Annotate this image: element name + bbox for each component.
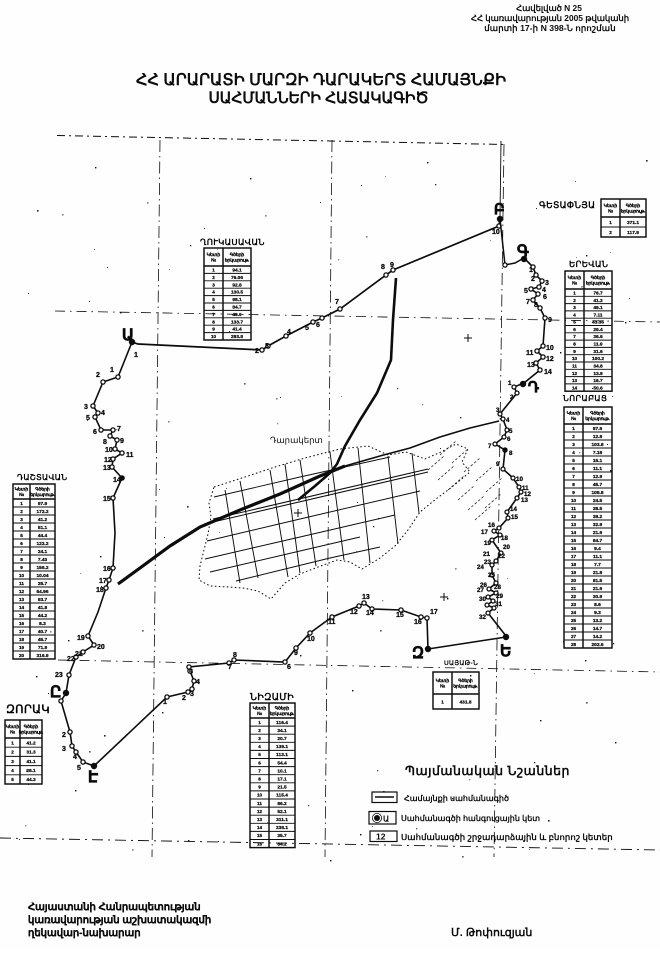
svg-text:17: 17 [430, 609, 438, 616]
svg-text:44.3: 44.3 [26, 777, 36, 783]
svg-text:24: 24 [571, 610, 577, 615]
svg-text:Է: Է [88, 769, 99, 786]
svg-text:103.8: 103.8 [591, 442, 603, 448]
svg-text:9.3: 9.3 [594, 610, 601, 616]
svg-text:1: 1 [572, 426, 575, 431]
svg-text:Պայմանական Նշաններ: Պայմանական Նշաններ [405, 764, 570, 778]
svg-text:238.1: 238.1 [276, 825, 288, 831]
svg-text:2: 2 [96, 372, 100, 379]
svg-text:Դ: Դ [528, 380, 540, 396]
svg-text:ԵՐԵՎԱՆ: ԵՐԵՎԱՆ [569, 259, 609, 269]
svg-text:№: № [571, 416, 576, 421]
svg-text:ՂՈՒԿԱՍԱՎԱՆ: ՂՈՒԿԱՍԱՎԱՆ [200, 237, 265, 247]
svg-text:4: 4 [73, 754, 77, 761]
svg-text:12: 12 [572, 371, 578, 376]
svg-text:41.2: 41.2 [593, 298, 603, 304]
svg-text:ՆՈՐԱԲԱՑ: ՆՈՐԱԲԱՑ [562, 394, 607, 403]
svg-text:13: 13 [572, 378, 578, 383]
svg-text:41.2: 41.2 [38, 517, 48, 523]
svg-text:115.4: 115.4 [276, 793, 288, 799]
svg-text:116.4: 116.4 [276, 720, 288, 726]
svg-text:Մ. Թոփուզյան: Մ. Թոփուզյան [451, 927, 532, 939]
svg-text:13: 13 [257, 817, 263, 822]
svg-text:13.2: 13.2 [593, 618, 603, 624]
svg-text:15: 15 [396, 612, 404, 619]
svg-text:9: 9 [573, 349, 576, 354]
svg-text:34.8: 34.8 [593, 363, 603, 369]
svg-text:10: 10 [307, 636, 315, 643]
svg-text:32.9: 32.9 [593, 522, 603, 528]
svg-text:2: 2 [609, 230, 612, 235]
svg-text:50.6: 50.6 [593, 385, 603, 391]
svg-text:28: 28 [494, 584, 501, 591]
svg-text:14.2: 14.2 [593, 634, 603, 640]
svg-text:Գծերի: Գծերի [458, 678, 473, 683]
svg-text:9: 9 [294, 650, 298, 657]
svg-text:45.7: 45.7 [593, 482, 603, 488]
svg-text:6: 6 [212, 305, 215, 310]
svg-text:7.11: 7.11 [593, 312, 602, 318]
svg-text:4: 4 [101, 410, 105, 417]
svg-text:№: № [440, 684, 445, 689]
svg-text:երկարութ.: երկարութ. [585, 416, 610, 421]
svg-text:№: № [608, 209, 613, 214]
svg-text:Գծերի: Գծերի [35, 487, 50, 492]
svg-text:7: 7 [228, 664, 232, 671]
svg-text:21.5: 21.5 [277, 785, 287, 791]
svg-text:81.5: 81.5 [593, 578, 603, 584]
svg-text:5: 5 [189, 669, 193, 676]
svg-text:10: 10 [492, 229, 500, 236]
svg-text:7.18: 7.18 [593, 450, 603, 456]
svg-text:18: 18 [19, 637, 25, 642]
svg-text:3: 3 [20, 517, 23, 522]
svg-text:4: 4 [11, 768, 14, 773]
svg-text:4: 4 [212, 290, 215, 295]
svg-text:8: 8 [103, 439, 107, 446]
svg-text:20: 20 [97, 644, 105, 651]
svg-text:2: 2 [182, 695, 186, 702]
svg-text:23: 23 [55, 672, 63, 679]
svg-text:17: 17 [99, 578, 107, 585]
svg-text:24.5: 24.5 [593, 498, 603, 504]
svg-text:13: 13 [19, 597, 25, 602]
svg-text:28.1: 28.1 [26, 768, 36, 774]
svg-text:Գծերի: Գծերի [590, 411, 605, 416]
svg-text:2: 2 [62, 732, 66, 739]
svg-text:ՀՀ կառավարության 2005 թվականի: ՀՀ կառավարության 2005 թվականի [471, 13, 629, 23]
svg-text:2: 2 [20, 509, 23, 514]
svg-text:5: 5 [524, 288, 528, 295]
svg-text:202.6: 202.6 [591, 642, 603, 648]
svg-text:41.2: 41.2 [26, 740, 36, 746]
svg-text:1: 1 [529, 267, 533, 274]
svg-text:92.8: 92.8 [232, 282, 242, 288]
svg-text:1: 1 [441, 699, 444, 704]
svg-text:2: 2 [572, 434, 575, 439]
svg-text:Ա: Ա [122, 327, 134, 344]
svg-text:21.8: 21.8 [593, 570, 603, 576]
svg-text:41.4: 41.4 [232, 327, 242, 333]
svg-text:21.6: 21.6 [593, 530, 603, 536]
svg-text:12: 12 [257, 809, 263, 814]
svg-text:133.7: 133.7 [231, 319, 243, 325]
svg-text:6: 6 [93, 429, 97, 436]
svg-text:13: 13 [103, 465, 111, 472]
svg-text:7: 7 [573, 334, 576, 339]
svg-text:1: 1 [163, 699, 167, 706]
svg-text:30.9: 30.9 [593, 594, 603, 600]
svg-text:2: 2 [531, 276, 535, 283]
svg-text:6: 6 [543, 294, 547, 301]
svg-text:1: 1 [20, 501, 23, 506]
svg-text:2: 2 [258, 728, 261, 733]
svg-text:14: 14 [510, 506, 517, 513]
svg-text:49.9: 49.9 [232, 312, 242, 318]
svg-text:12: 12 [376, 832, 386, 842]
svg-text:8: 8 [212, 319, 215, 324]
svg-text:86.2: 86.2 [277, 801, 287, 807]
svg-text:Հավելված N 25: Հավելված N 25 [516, 3, 582, 13]
svg-text:15: 15 [571, 538, 577, 543]
svg-text:Սահմանագծի հանգուցային կետ: Սահմանագծի հանգուցային կետ [401, 813, 540, 824]
svg-text:27: 27 [571, 634, 577, 639]
svg-text:ԳԵՏԱՓՆՅԱ: ԳԵՏԱՓՆՅԱ [539, 200, 595, 210]
svg-text:76.06: 76.06 [231, 275, 243, 281]
svg-text:11: 11 [257, 801, 262, 806]
svg-text:1: 1 [212, 268, 215, 273]
svg-text:Գծերի: Գծերի [24, 724, 39, 729]
svg-text:3: 3 [84, 404, 88, 411]
svg-text:41.8: 41.8 [38, 605, 48, 611]
svg-text:9: 9 [572, 490, 575, 495]
svg-text:15: 15 [19, 613, 25, 618]
svg-text:13: 13 [362, 594, 370, 601]
svg-text:41.1: 41.1 [26, 759, 36, 765]
svg-text:14: 14 [572, 385, 578, 390]
svg-text:172.2: 172.2 [36, 509, 48, 515]
svg-text:7: 7 [335, 299, 339, 306]
svg-text:13: 13 [571, 522, 577, 527]
svg-text:12: 12 [104, 457, 112, 464]
svg-text:14: 14 [113, 477, 121, 484]
svg-text:31: 31 [495, 601, 502, 608]
svg-text:16: 16 [571, 546, 577, 551]
svg-text:12: 12 [19, 589, 25, 594]
svg-text:27: 27 [477, 587, 484, 594]
svg-text:4: 4 [542, 287, 546, 294]
svg-text:10: 10 [546, 345, 554, 352]
svg-text:4: 4 [287, 329, 291, 336]
svg-text:Բ: Բ [494, 202, 505, 218]
svg-text:5: 5 [20, 533, 23, 538]
svg-text:21: 21 [571, 586, 577, 591]
svg-text:21.6: 21.6 [593, 586, 603, 592]
svg-text:1: 1 [258, 720, 261, 725]
svg-text:44.4: 44.4 [38, 533, 48, 539]
svg-text:24.1: 24.1 [38, 549, 48, 555]
svg-text:14.7: 14.7 [593, 626, 603, 632]
svg-text:3: 3 [62, 746, 66, 753]
svg-text:293.8: 293.8 [231, 334, 243, 340]
svg-text:11.1: 11.1 [593, 554, 602, 560]
svg-text:19: 19 [571, 570, 577, 575]
svg-text:71.9: 71.9 [38, 645, 48, 651]
svg-text:2: 2 [11, 750, 14, 755]
svg-text:3: 3 [212, 282, 215, 287]
svg-text:Ը: Ը [50, 684, 61, 701]
svg-text:15: 15 [103, 496, 111, 503]
svg-text:16: 16 [257, 841, 263, 846]
svg-text:կառավարության աշխատակազմի: կառավարության աշխատակազմի [28, 915, 211, 926]
svg-text:Զ: Զ [412, 645, 424, 662]
svg-text:մարտի 17-ի N 398-Ն որոշման: մարտի 17-ի N 398-Ն որոշման [484, 23, 616, 34]
svg-text:19: 19 [77, 635, 85, 642]
svg-text:87.6: 87.6 [593, 426, 603, 432]
svg-text:3: 3 [545, 280, 549, 287]
svg-text:ղեկավար-նախարար: ղեկավար-նախարար [28, 928, 141, 939]
svg-text:316.9: 316.9 [36, 653, 48, 659]
svg-text:№: № [19, 492, 24, 497]
svg-text:5: 5 [509, 428, 513, 435]
svg-text:9: 9 [258, 785, 261, 790]
svg-text:19: 19 [19, 645, 25, 650]
svg-text:12: 12 [571, 514, 577, 519]
svg-text:4: 4 [573, 312, 576, 317]
svg-text:122.2: 122.2 [36, 541, 48, 547]
svg-text:Հայաստանի Հանրապետության: Հայաստանի Հանրապետության [28, 902, 201, 913]
svg-text:9: 9 [548, 317, 552, 324]
svg-text:13.9: 13.9 [593, 371, 603, 377]
svg-text:6: 6 [20, 541, 23, 546]
svg-text:7.43: 7.43 [38, 557, 48, 563]
svg-text:10: 10 [572, 356, 578, 361]
svg-text:Համայնքի սահմանագիծ: Համայնքի սահմանագիծ [404, 793, 509, 803]
svg-text:4: 4 [572, 450, 575, 455]
svg-text:3: 3 [496, 407, 500, 414]
svg-text:19: 19 [484, 540, 491, 547]
svg-text:7: 7 [212, 312, 215, 317]
svg-text:երկարութ.: երկարութ. [270, 711, 295, 716]
svg-text:11: 11 [328, 619, 336, 626]
svg-text:52.1: 52.1 [277, 809, 287, 815]
svg-text:28: 28 [571, 642, 577, 647]
svg-text:8.3: 8.3 [39, 621, 46, 627]
svg-text:43.35: 43.35 [592, 320, 604, 326]
svg-text:36.6: 36.6 [593, 334, 603, 340]
svg-text:40.7: 40.7 [38, 629, 48, 635]
svg-text:ՍԱՀՄԱՆՆԵՐԻ ՀԱՏԱԿԱԳԻԾ: ՍԱՀՄԱՆՆԵՐԻ ՀԱՏԱԿԱԳԻԾ [208, 90, 428, 107]
svg-text:10: 10 [516, 476, 523, 483]
svg-text:16: 16 [103, 566, 111, 573]
svg-text:20: 20 [503, 544, 510, 551]
svg-text:84.7: 84.7 [232, 305, 242, 311]
svg-text:18: 18 [501, 535, 508, 542]
svg-text:11.1: 11.1 [593, 466, 602, 472]
svg-text:25.7: 25.7 [38, 581, 48, 587]
svg-text:7: 7 [526, 299, 530, 306]
svg-text:Ա: Ա [383, 815, 389, 824]
svg-text:49.1: 49.1 [593, 305, 603, 311]
svg-text:17.1: 17.1 [277, 777, 287, 783]
svg-text:Գծերի: Գծերի [275, 706, 290, 711]
svg-text:38.5: 38.5 [593, 506, 603, 512]
svg-text:5: 5 [258, 752, 261, 757]
svg-text:ՀՀ ԱՐԱՐԱՏԻ ՄԱՐԶԻ ԴԱՐԱԿԵՐՏ ՀԱՄԱ: ՀՀ ԱՐԱՐԱՏԻ ՄԱՐԶԻ ԴԱՐԱԿԵՐՏ ՀԱՄԱՅՆՔԻ [136, 72, 506, 89]
svg-text:8: 8 [258, 777, 261, 782]
svg-text:10: 10 [105, 447, 113, 454]
svg-text:8: 8 [381, 264, 385, 271]
svg-text:9: 9 [390, 262, 394, 269]
svg-text:երկարութ.: երկարութ. [30, 492, 55, 497]
svg-text:23: 23 [571, 602, 577, 607]
svg-text:54.96: 54.96 [36, 589, 48, 595]
svg-text:8: 8 [509, 450, 513, 457]
svg-text:15: 15 [257, 833, 263, 838]
svg-text:6: 6 [316, 322, 320, 329]
svg-text:21: 21 [483, 551, 490, 558]
svg-text:22: 22 [67, 656, 75, 663]
svg-text:84.7: 84.7 [593, 538, 603, 544]
svg-text:8: 8 [233, 652, 237, 659]
svg-text:31.6: 31.6 [593, 349, 603, 355]
svg-text:7: 7 [20, 549, 23, 554]
svg-text:35.7: 35.7 [277, 833, 287, 839]
svg-text:23: 23 [484, 559, 491, 566]
svg-text:11: 11 [526, 350, 534, 357]
svg-text:30: 30 [479, 596, 486, 603]
svg-text:98.1: 98.1 [232, 297, 242, 303]
svg-text:97.9: 97.9 [38, 501, 48, 507]
svg-text:93.7: 93.7 [38, 597, 48, 603]
svg-text:3: 3 [572, 442, 575, 447]
svg-text:7.7: 7.7 [594, 562, 601, 568]
svg-text:51.1: 51.1 [38, 525, 48, 531]
svg-text:109.8: 109.8 [591, 490, 603, 496]
svg-text:2: 2 [573, 298, 576, 303]
svg-text:5: 5 [573, 320, 576, 325]
svg-text:10: 10 [19, 573, 25, 578]
svg-text:երկարութ.: երկարութ. [19, 730, 44, 735]
svg-text:8: 8 [572, 482, 575, 487]
svg-text:7: 7 [488, 443, 492, 450]
svg-text:10: 10 [211, 334, 217, 339]
svg-text:22: 22 [498, 553, 505, 560]
svg-text:13: 13 [527, 362, 535, 369]
svg-text:14: 14 [19, 605, 25, 610]
svg-text:5: 5 [212, 297, 215, 302]
svg-text:32: 32 [479, 614, 486, 621]
svg-text:11: 11 [126, 452, 134, 459]
svg-text:21: 21 [75, 651, 83, 658]
svg-text:ԶՈՐԱԿ: ԶՈՐԱԿ [6, 703, 50, 716]
svg-text:10: 10 [257, 793, 263, 798]
svg-text:Գծերի: Գծերի [591, 275, 606, 280]
svg-text:14: 14 [544, 369, 552, 376]
svg-text:3: 3 [11, 759, 14, 764]
svg-text:Դարակերտ: Դարակերտ [270, 435, 323, 445]
svg-text:17: 17 [571, 554, 577, 559]
svg-text:11: 11 [571, 506, 576, 511]
svg-text:130.5: 130.5 [231, 290, 243, 296]
svg-text:76.7: 76.7 [593, 290, 603, 296]
svg-text:20: 20 [19, 653, 25, 658]
svg-text:4: 4 [258, 744, 261, 749]
svg-text:4: 4 [506, 417, 510, 424]
svg-text:Գ: Գ [517, 243, 529, 260]
svg-text:7: 7 [572, 474, 575, 479]
svg-text:8.6: 8.6 [594, 602, 601, 608]
svg-text:29: 29 [496, 593, 503, 600]
svg-text:3: 3 [265, 343, 269, 350]
svg-text:Գծերի: Գծերի [230, 252, 245, 257]
svg-text:16.7: 16.7 [593, 378, 603, 384]
svg-text:8: 8 [20, 557, 23, 562]
svg-text:25: 25 [488, 572, 495, 579]
svg-text:11.9: 11.9 [593, 342, 602, 348]
svg-text:2: 2 [212, 275, 215, 280]
svg-text:5: 5 [11, 777, 14, 782]
svg-text:14: 14 [257, 825, 263, 830]
svg-text:12: 12 [350, 609, 358, 616]
svg-text:18: 18 [571, 562, 577, 567]
svg-text:Ե: Ե [500, 643, 511, 660]
svg-text:94.1: 94.1 [232, 268, 242, 274]
svg-text:3: 3 [573, 305, 576, 310]
svg-text:№: № [211, 258, 216, 263]
svg-text:№: № [10, 730, 15, 735]
svg-text:139.1: 139.1 [276, 744, 288, 750]
svg-text:117.9: 117.9 [627, 230, 639, 236]
svg-text:1: 1 [609, 220, 612, 225]
svg-text:10: 10 [571, 498, 577, 503]
svg-text:10.04: 10.04 [36, 573, 48, 579]
svg-text:16: 16 [488, 522, 495, 529]
svg-text:5: 5 [572, 458, 575, 463]
svg-text:ՍԱՅԱԹ-Ն: ՍԱՅԱԹ-Ն [444, 659, 478, 667]
svg-text:45.7: 45.7 [38, 637, 48, 643]
svg-text:6: 6 [572, 466, 575, 471]
svg-text:14: 14 [366, 610, 374, 617]
svg-text:1: 1 [110, 367, 114, 374]
svg-text:371.1: 371.1 [627, 220, 639, 226]
svg-text:29.4: 29.4 [593, 327, 603, 333]
svg-text:1: 1 [508, 380, 512, 387]
svg-text:10.1: 10.1 [277, 768, 287, 774]
svg-text:31.3: 31.3 [26, 750, 36, 756]
svg-text:9.4: 9.4 [594, 546, 601, 552]
svg-text:երկարութ.: երկարութ. [586, 281, 611, 286]
svg-text:ԴԱՇՏԱՎԱՆ: ԴԱՇՏԱՎԱՆ [17, 473, 67, 482]
svg-text:1: 1 [573, 290, 576, 295]
svg-text:9: 9 [496, 461, 500, 468]
svg-text:12.9: 12.9 [593, 474, 603, 480]
svg-text:1: 1 [134, 352, 138, 359]
svg-text:18: 18 [96, 587, 104, 594]
svg-text:25: 25 [571, 618, 577, 623]
svg-text:4: 4 [196, 679, 200, 686]
svg-text:39.2: 39.2 [593, 514, 603, 520]
svg-text:9: 9 [212, 327, 215, 332]
svg-text:8: 8 [534, 302, 538, 309]
svg-text:34.1: 34.1 [277, 728, 287, 734]
svg-text:12.8: 12.8 [593, 434, 603, 440]
svg-text:9: 9 [120, 438, 124, 445]
svg-text:11: 11 [19, 581, 24, 586]
svg-text:11: 11 [572, 363, 577, 368]
svg-text:16: 16 [414, 619, 422, 626]
svg-text:12: 12 [546, 356, 554, 363]
